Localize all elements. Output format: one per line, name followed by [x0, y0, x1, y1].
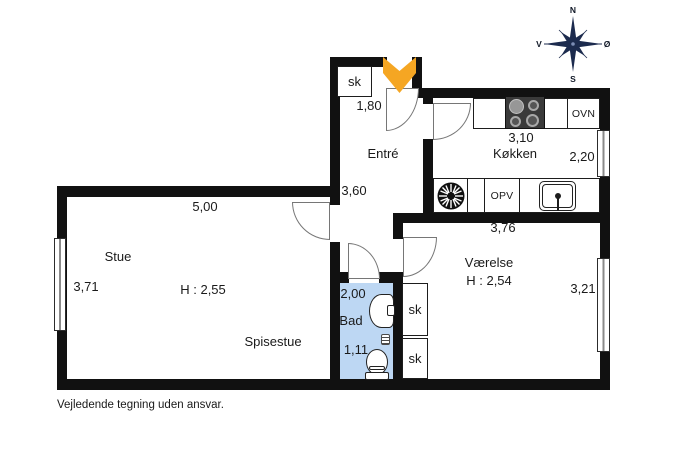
burner-icon: [509, 99, 524, 114]
oven-cabinet: OVN: [567, 98, 600, 129]
front-door-arc: [386, 88, 419, 131]
kitchen-sink-tap-stem: [557, 197, 559, 211]
counter-top-right: [544, 98, 568, 129]
burner-icon: [526, 114, 539, 127]
counter-top-left: [473, 98, 507, 129]
window-vaerelse: [597, 258, 610, 352]
oven-label: OVN: [572, 108, 595, 120]
room-label-kokken: Køkken: [478, 146, 552, 161]
closet-entre: sk: [337, 66, 372, 97]
closet-hall-top: sk: [402, 283, 428, 336]
dim-kokken-width: 3,10: [498, 130, 544, 145]
spisestue-door-arc: [292, 202, 330, 240]
compass-v-label: V: [536, 39, 542, 49]
burner-icon: [510, 116, 521, 127]
room-label-entre: Entré: [357, 146, 409, 161]
dishwasher-cabinet: OPV: [484, 178, 520, 213]
compass-n-label: N: [570, 5, 576, 15]
dim-entre-depth: 3,60: [335, 183, 373, 198]
wall-kitchen-left-lower: [423, 139, 433, 215]
compass-s-label: S: [570, 74, 576, 84]
wall-outer-bottom: [57, 379, 610, 390]
bad-door-arc: [348, 243, 380, 279]
ceiling-height-vaerelse: H : 2,54: [451, 273, 527, 288]
dim-stue-depth: 3,71: [66, 279, 106, 294]
disclaimer-text: Vejledende tegning uden ansvar.: [57, 399, 357, 411]
floorplan: sk sk sk OVN OPV: [0, 0, 687, 457]
stove-icon: [505, 96, 545, 129]
room-label-spisestue: Spisestue: [233, 334, 313, 349]
closet-entre-label: sk: [348, 74, 361, 89]
vaerelse-door-arc: [403, 237, 437, 277]
burner-icon: [528, 100, 539, 111]
wall-bad-top-b: [379, 272, 403, 283]
dim-kokken-depth: 2,20: [559, 149, 605, 164]
bath-sink-tap-icon: [387, 305, 395, 316]
closet-hall-bottom-label: sk: [409, 351, 422, 366]
dim-vaerelse-width: 3,76: [480, 220, 526, 235]
dim-bad-depth: 1,11: [337, 342, 375, 357]
toilet-cistern-icon: [365, 372, 389, 380]
ceiling-height-stue: H : 2,55: [167, 282, 239, 297]
wall-kitchen-left-upper: [423, 88, 433, 104]
wall-vaerelse-stub: [393, 213, 403, 239]
wall-entre-left-lower: [330, 242, 340, 379]
counter-bottom-narrow: [467, 178, 485, 213]
compass-o-label: Ø: [604, 39, 610, 49]
window-stue: [54, 238, 66, 331]
fan-icon: [436, 181, 466, 211]
dim-bad-width: 2,00: [334, 286, 372, 301]
drain-icon: [381, 334, 390, 345]
dim-vaerelse-depth: 3,21: [560, 281, 606, 296]
dim-stue-width: 5,00: [180, 199, 230, 214]
dishwasher-label: OPV: [491, 190, 514, 202]
room-label-stue: Stue: [88, 249, 148, 264]
wall-bad-top-a: [330, 272, 349, 283]
toilet-seat-line: [369, 366, 385, 370]
wall-stue-top: [57, 186, 340, 197]
dim-entre-width: 1,80: [350, 98, 388, 113]
room-label-bad: Bad: [332, 313, 370, 328]
entrance-arrow-icon: [383, 56, 416, 94]
closet-hall-top-label: sk: [409, 302, 422, 317]
room-label-vaerelse: Værelse: [448, 255, 530, 270]
compass-rose-icon: N S V Ø: [536, 4, 610, 84]
kitchen-door-arc: [433, 103, 471, 140]
closet-hall-bottom: sk: [402, 338, 428, 379]
